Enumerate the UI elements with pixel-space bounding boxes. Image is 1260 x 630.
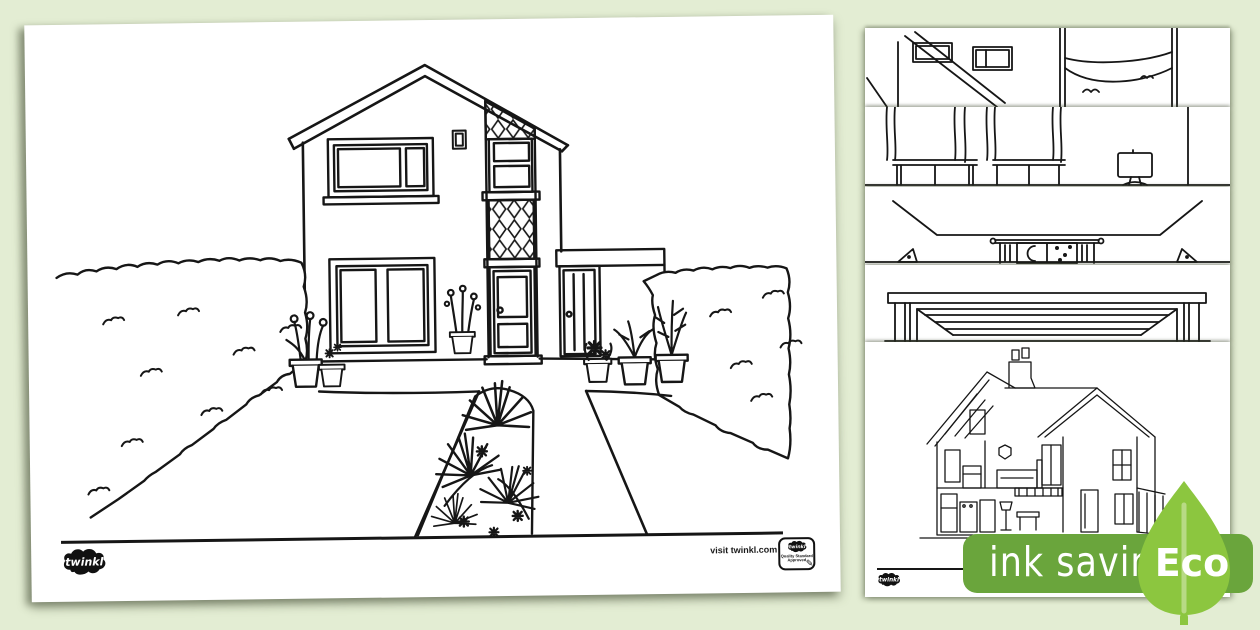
- side-extension: [556, 249, 665, 356]
- garage-door-illustration: [865, 265, 1230, 342]
- lower-window: [329, 258, 435, 353]
- centre-potted-plant: [445, 286, 481, 354]
- twinkl-logo: twinkl: [61, 547, 107, 580]
- preview-page-hallway-stairs: [865, 28, 1230, 107]
- garden-path: [413, 379, 647, 538]
- upper-window: [323, 138, 439, 204]
- front-door: [489, 267, 535, 357]
- main-colouring-page: twinkl visit twinkl.com twinkl Quality S…: [24, 15, 840, 603]
- svg-text:twinkl: twinkl: [788, 544, 805, 550]
- twinkl-logo-small: twinkl: [877, 572, 901, 589]
- preview-page-living-room: [865, 107, 1230, 187]
- eco-label: Eco: [1150, 541, 1234, 585]
- wall-vent: [453, 131, 466, 149]
- preview-page-bedroom-night: [865, 187, 1230, 265]
- quality-standard-badge: twinkl Quality Standard Approved ✎: [778, 537, 815, 570]
- twinkl-colouring-preview: twinkl visit twinkl.com twinkl Quality S…: [0, 0, 1260, 630]
- lattice-entrance: [481, 100, 541, 365]
- visit-twinkl-text: visit twinkl.com: [707, 545, 777, 556]
- svg-text:twinkl: twinkl: [879, 578, 900, 584]
- left-hedge: [56, 257, 310, 542]
- twinkl-logo-text: twinkl: [65, 555, 104, 569]
- living-room-illustration: [865, 107, 1230, 187]
- house-garden-illustration: [24, 15, 840, 603]
- bedroom-night-illustration: [865, 187, 1230, 265]
- pencil-icon: ✎: [806, 558, 814, 569]
- hallway-stairs-illustration: [865, 28, 1230, 107]
- house-roof: [288, 63, 568, 155]
- moon-icon: [1028, 246, 1036, 261]
- preview-page-garage: [865, 265, 1230, 342]
